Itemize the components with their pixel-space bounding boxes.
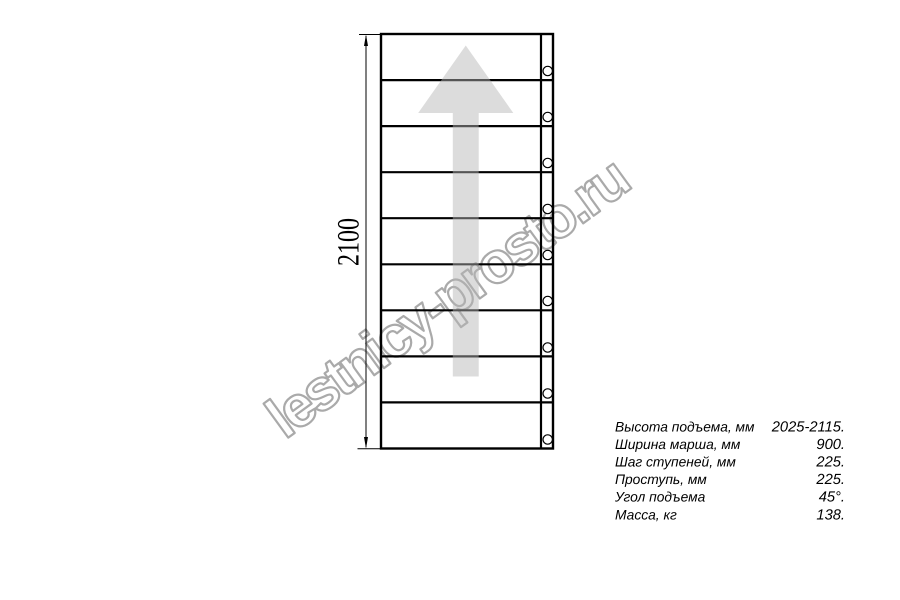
svg-text:2025-2115.: 2025-2115. bbox=[771, 420, 845, 436]
svg-text:900.: 900. bbox=[816, 437, 845, 453]
svg-text:2100: 2100 bbox=[331, 218, 366, 266]
svg-text:225.: 225. bbox=[815, 472, 845, 488]
svg-text:45°.: 45°. bbox=[819, 490, 845, 506]
svg-text:Масса, кг: Масса, кг bbox=[615, 508, 677, 523]
svg-text:Ширина марша, мм: Ширина марша, мм bbox=[615, 437, 741, 452]
svg-text:Проступь, мм: Проступь, мм bbox=[615, 472, 707, 487]
svg-text:Шаг ступеней, мм: Шаг ступеней, мм bbox=[615, 455, 736, 470]
svg-text:Угол подъема: Угол подъема bbox=[614, 490, 706, 505]
svg-text:138.: 138. bbox=[816, 508, 845, 524]
svg-text:225.: 225. bbox=[815, 455, 845, 471]
svg-text:Высота подъема, мм: Высота подъема, мм bbox=[615, 420, 755, 435]
